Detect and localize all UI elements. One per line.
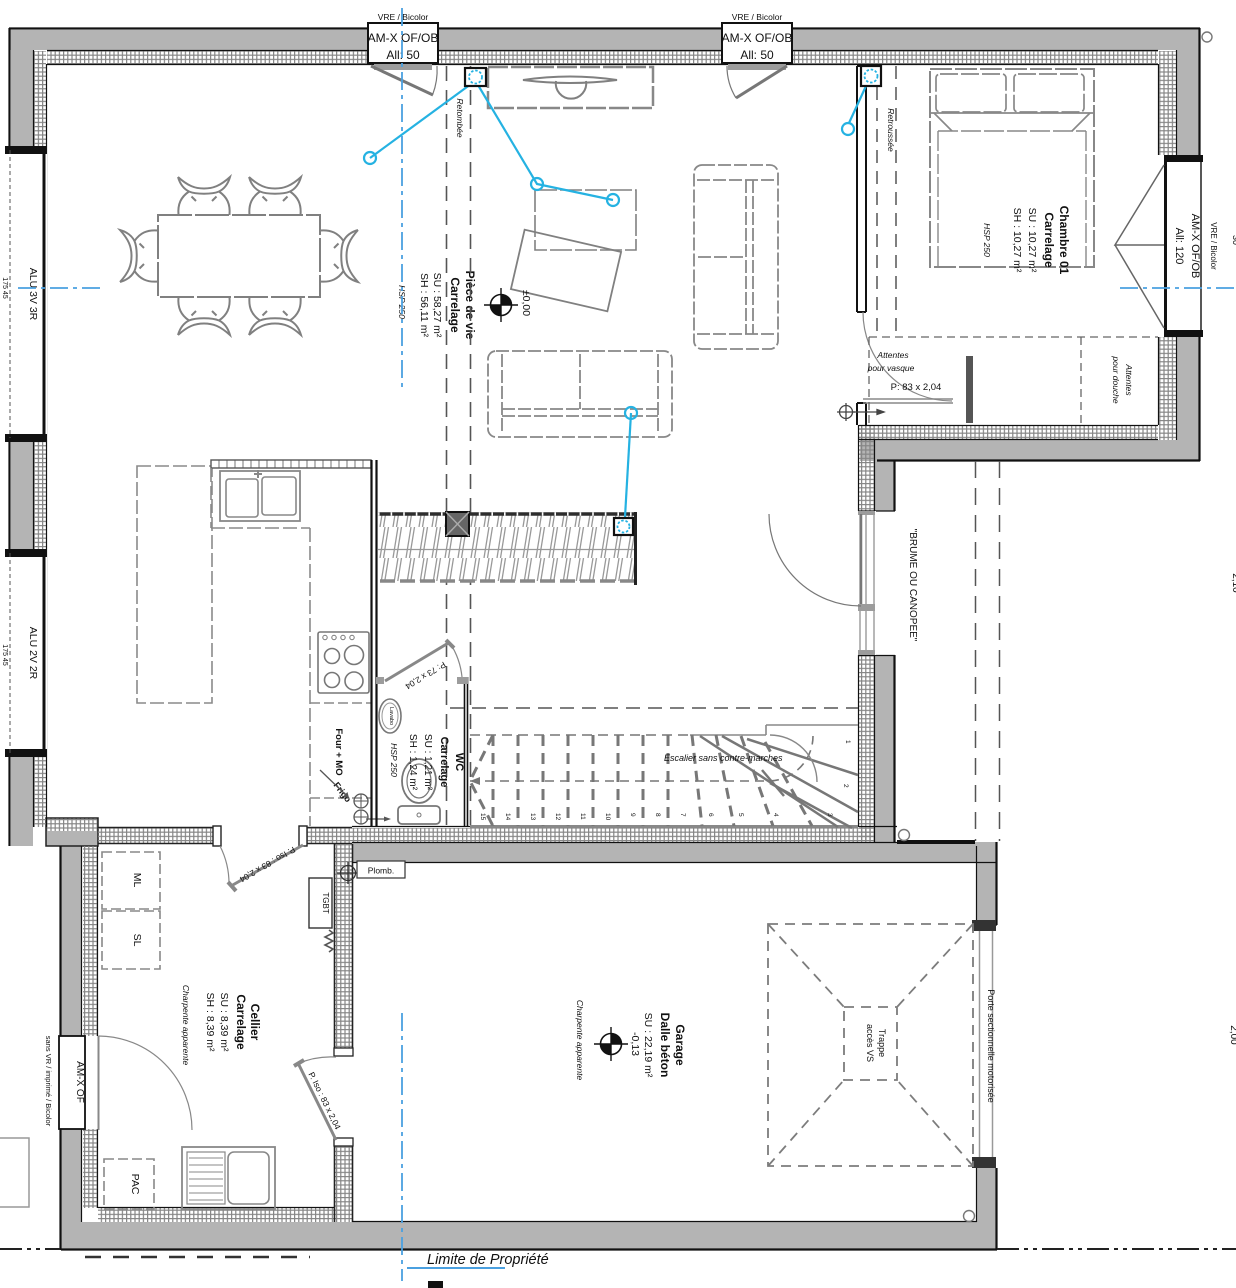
svg-text:pour douche: pour douche — [1111, 355, 1121, 404]
svg-text:ML: ML — [131, 873, 143, 888]
svg-text:AM-X OF: AM-X OF — [74, 1061, 85, 1103]
svg-text:sans VR / imprimé / Bicolor: sans VR / imprimé / Bicolor — [44, 1036, 53, 1127]
svg-text:5: 5 — [737, 813, 744, 817]
svg-text:AM-X OF/OB: AM-X OF/OB — [368, 31, 439, 45]
svg-text:All: 50: All: 50 — [386, 48, 420, 62]
svg-text:PAC: PAC — [129, 1174, 141, 1195]
svg-text:AM-X OF/OB: AM-X OF/OB — [1189, 214, 1201, 279]
svg-text:7: 7 — [679, 813, 686, 817]
svg-text:Cellier: Cellier — [248, 1004, 262, 1041]
svg-text:9: 9 — [629, 813, 636, 817]
svg-text:2,00: 2,00 — [1228, 1025, 1236, 1045]
svg-text:SL: SL — [131, 934, 143, 947]
svg-text:accès VS: accès VS — [865, 1024, 875, 1062]
svg-text:Carrelage: Carrelage — [234, 994, 248, 1050]
svg-text:175 45: 175 45 — [1, 277, 8, 299]
svg-text:11: 11 — [579, 813, 586, 820]
svg-text:1: 1 — [844, 740, 851, 744]
svg-text:Carrelage: Carrelage — [1042, 212, 1056, 268]
svg-text:Charpente apparente: Charpente apparente — [575, 1000, 585, 1081]
svg-text:Escalier sans contre-marches: Escalier sans contre-marches — [664, 753, 783, 763]
svg-text:Pièce de vie: Pièce de vie — [463, 271, 477, 340]
svg-text:SU : 1,21 m²: SU : 1,21 m² — [422, 734, 433, 791]
svg-text:Retombée: Retombée — [455, 98, 465, 137]
svg-text:ALU 2V 2R: ALU 2V 2R — [27, 627, 39, 680]
svg-text:AM-X OF/OB: AM-X OF/OB — [722, 31, 793, 45]
svg-text:Trappe: Trappe — [877, 1029, 887, 1057]
svg-text:Garage: Garage — [673, 1024, 687, 1066]
svg-text:All: 120: All: 120 — [1173, 228, 1185, 265]
svg-text:14: 14 — [504, 813, 511, 821]
svg-text:Plomb.: Plomb. — [368, 866, 394, 876]
svg-text:8: 8 — [654, 813, 661, 817]
svg-text:Porte sectionnelle motorisée: Porte sectionnelle motorisée — [986, 989, 996, 1103]
svg-text:ALU 3V 3R: ALU 3V 3R — [27, 268, 39, 321]
svg-text:SU : 8,39 m²: SU : 8,39 m² — [218, 993, 230, 1052]
svg-text:12: 12 — [554, 813, 561, 821]
svg-text:175 45: 175 45 — [1, 644, 8, 666]
svg-text:3: 3 — [826, 813, 833, 817]
svg-text:VRE / Bicolor: VRE / Bicolor — [732, 12, 783, 22]
svg-text:"BRUME OU CANOPEE": "BRUME OU CANOPEE" — [907, 529, 918, 642]
svg-text:VRE / Bicolor: VRE / Bicolor — [1209, 222, 1218, 270]
svg-text:Attentes: Attentes — [1124, 363, 1134, 396]
svg-text:P: 83 x 2,04: P: 83 x 2,04 — [891, 382, 942, 393]
svg-text:2,10: 2,10 — [1230, 573, 1236, 593]
svg-text:30: 30 — [1231, 235, 1236, 245]
svg-text:HSP 250: HSP 250 — [389, 743, 399, 777]
svg-text:VRE / Bicolor: VRE / Bicolor — [378, 12, 429, 22]
svg-text:Carrelage: Carrelage — [438, 737, 450, 788]
svg-text:HSP 250: HSP 250 — [982, 223, 992, 257]
svg-text:Dalle béton: Dalle béton — [658, 1013, 672, 1078]
svg-text:Carrelage: Carrelage — [448, 277, 462, 333]
svg-text:6: 6 — [707, 813, 714, 817]
svg-text:15: 15 — [479, 813, 486, 821]
svg-text:SH : 1,24 m²: SH : 1,24 m² — [407, 734, 418, 791]
svg-text:-0,13: -0,13 — [629, 1032, 641, 1056]
svg-text:±0,00: ±0,00 — [520, 290, 532, 316]
svg-text:Chambre 01: Chambre 01 — [1057, 206, 1071, 275]
svg-text:TGBT: TGBT — [321, 892, 330, 913]
svg-text:4: 4 — [772, 813, 779, 817]
svg-text:13: 13 — [529, 813, 536, 821]
svg-text:pour vasque: pour vasque — [867, 363, 915, 373]
svg-text:SH : 8,39 m²: SH : 8,39 m² — [204, 993, 216, 1052]
svg-text:Lavabo: Lavabo — [388, 707, 394, 725]
svg-text:SU : 10,27 m²: SU : 10,27 m² — [1026, 208, 1038, 273]
svg-text:WC: WC — [453, 753, 465, 771]
svg-text:Retroussée: Retroussée — [886, 108, 896, 152]
svg-text:10: 10 — [604, 813, 611, 821]
svg-text:SU : 58,27 m²: SU : 58,27 m² — [431, 273, 443, 338]
svg-text:Four + MO: Four + MO — [333, 728, 344, 775]
svg-text:2: 2 — [842, 784, 849, 788]
svg-text:Attentes: Attentes — [876, 350, 909, 360]
svg-text:SH : 10,27 m²: SH : 10,27 m² — [1011, 208, 1023, 273]
svg-text:SH : 56,11 m²: SH : 56,11 m² — [418, 273, 430, 337]
svg-text:Limite de Propriété: Limite de Propriété — [427, 1252, 549, 1268]
svg-text:Charpente apparente: Charpente apparente — [181, 985, 191, 1066]
svg-text:All: 50: All: 50 — [740, 48, 774, 62]
svg-text:SU : 22,19 m²: SU : 22,19 m² — [642, 1013, 654, 1078]
